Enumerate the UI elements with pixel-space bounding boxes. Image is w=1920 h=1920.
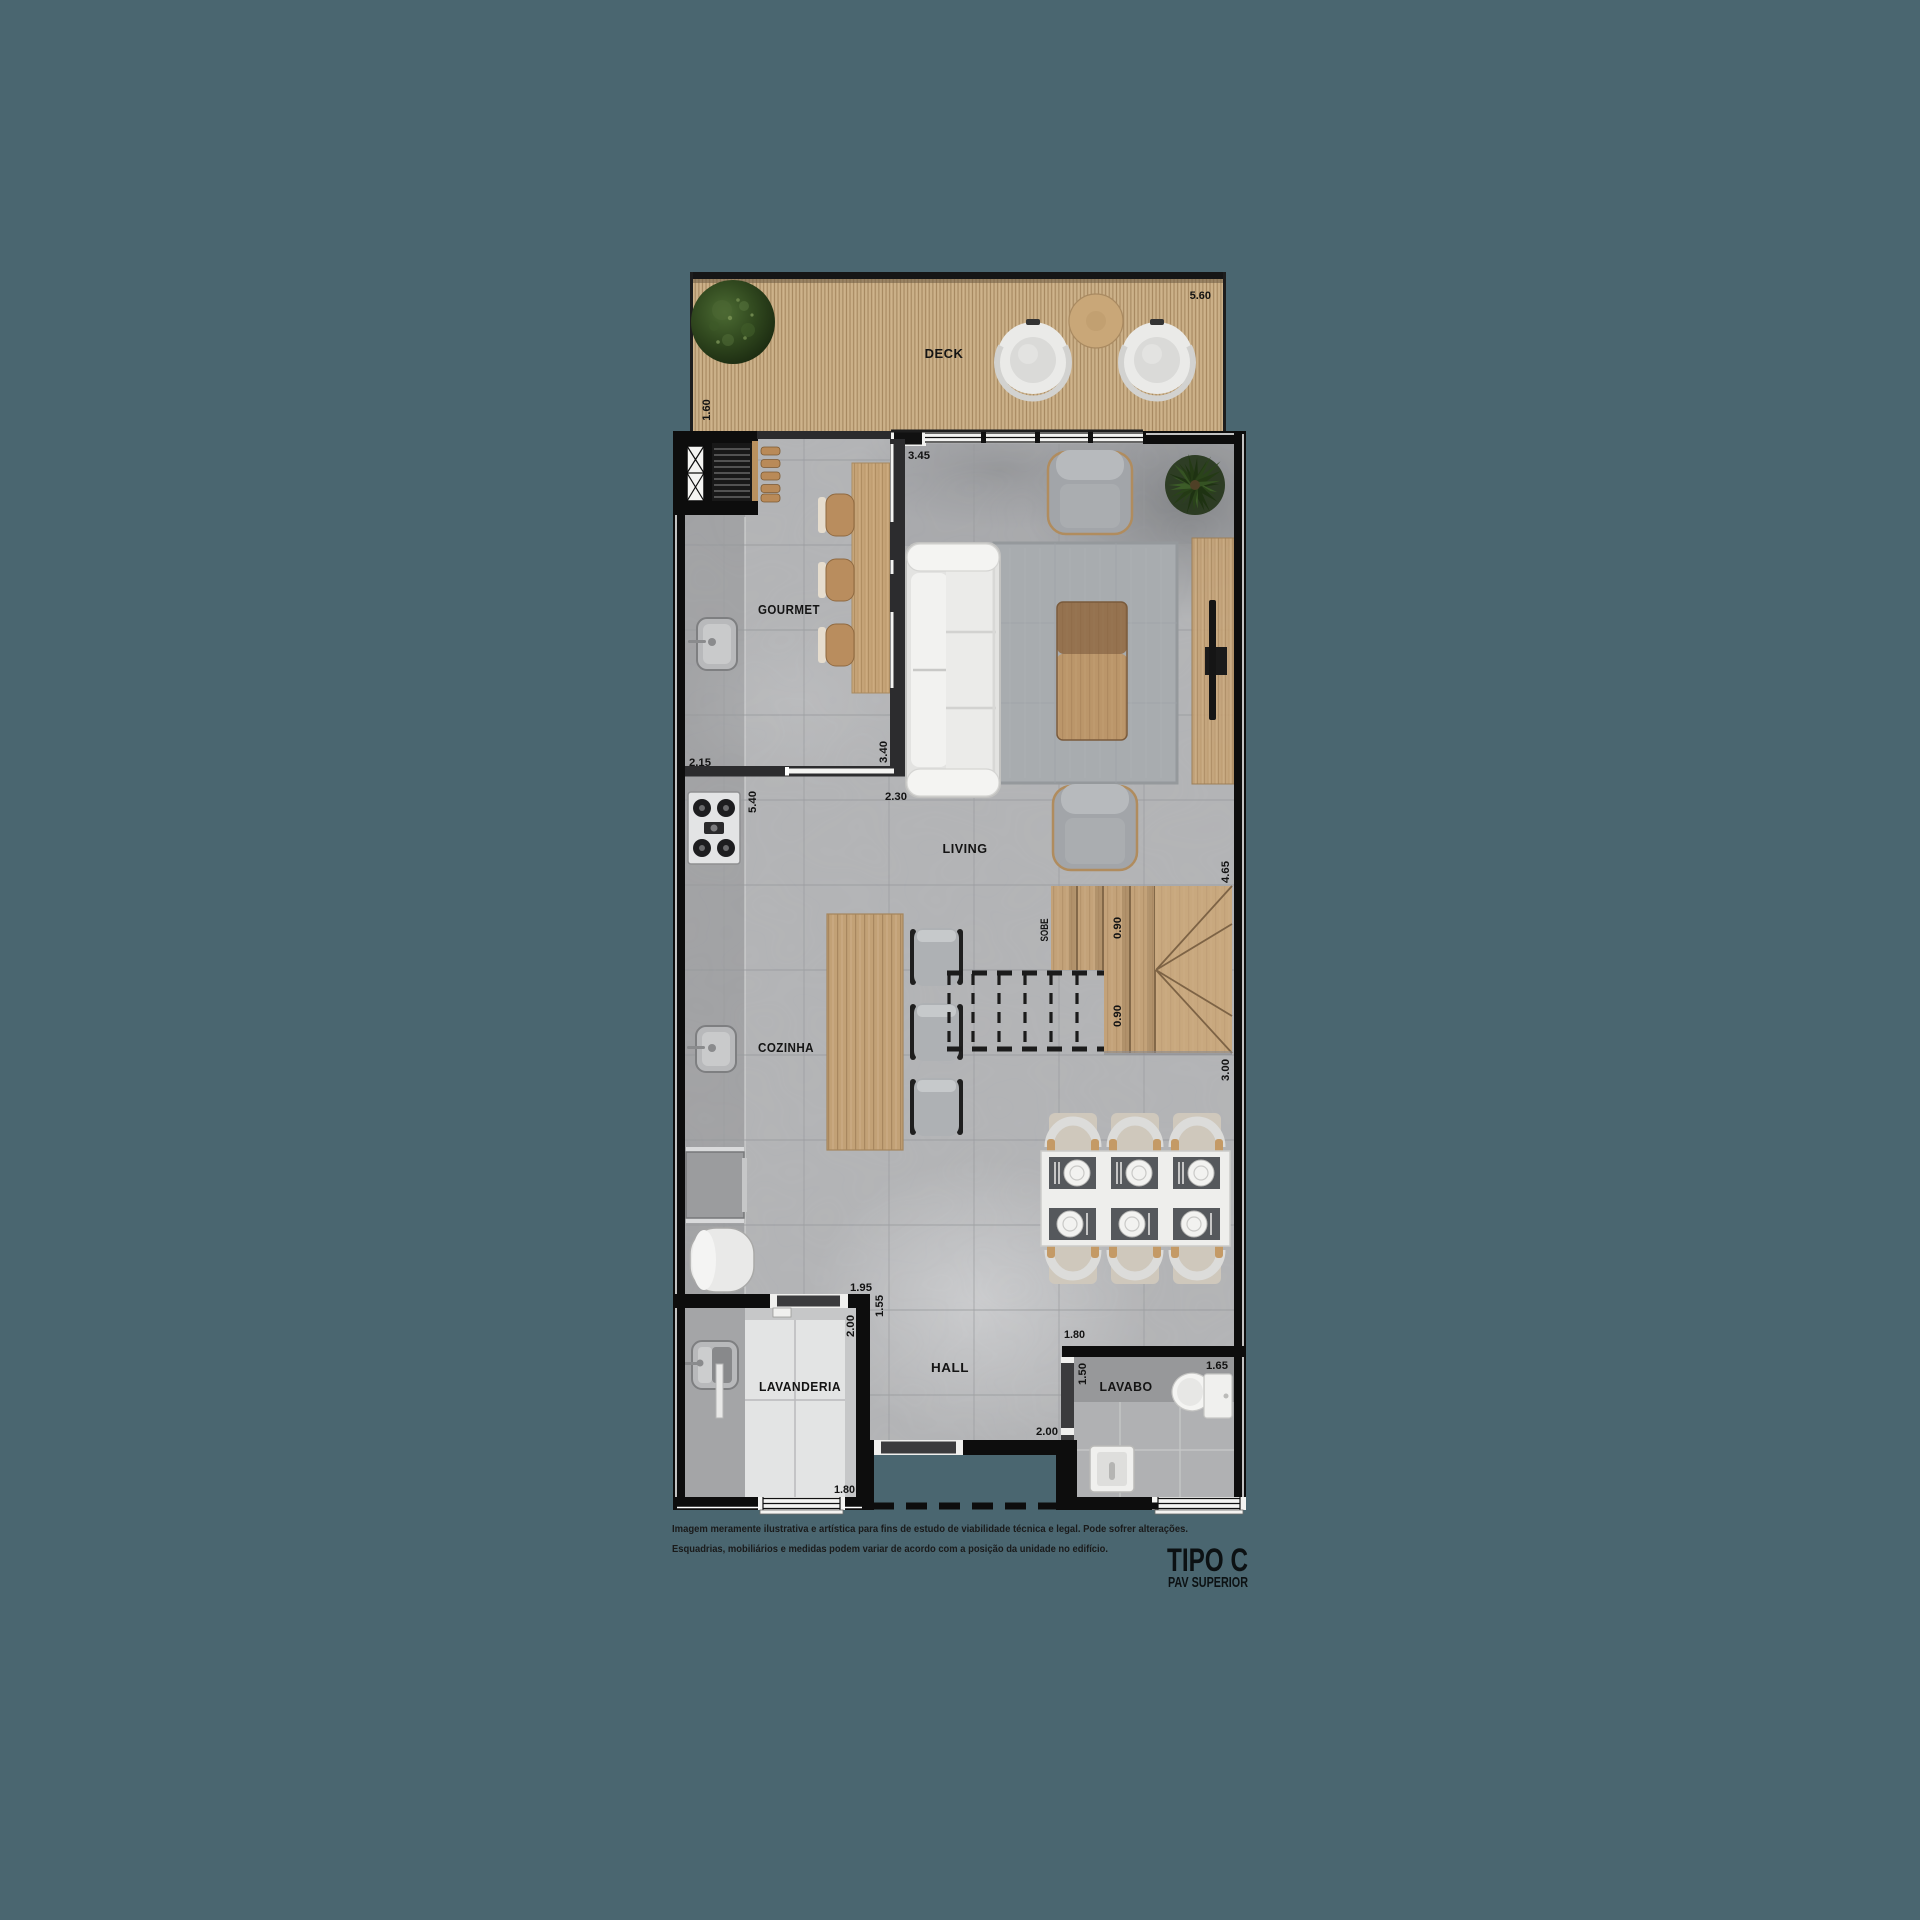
svg-text:1.50: 1.50: [1077, 1363, 1089, 1385]
svg-text:2.30: 2.30: [885, 791, 907, 803]
svg-text:Imagem meramente ilustrativa e: Imagem meramente ilustrativa e artística…: [672, 1523, 1188, 1535]
svg-text:0.90: 0.90: [1112, 917, 1124, 939]
svg-text:TIPO C: TIPO C: [1167, 1542, 1248, 1578]
svg-text:4.65: 4.65: [1220, 861, 1232, 883]
svg-text:SOBE: SOBE: [1039, 919, 1051, 942]
svg-text:GOURMET: GOURMET: [758, 602, 820, 617]
svg-text:2.00: 2.00: [1036, 1426, 1058, 1438]
svg-text:1.95: 1.95: [850, 1282, 872, 1294]
svg-text:COZINHA: COZINHA: [758, 1040, 814, 1055]
svg-text:LAVABO: LAVABO: [1100, 1379, 1153, 1394]
svg-text:3.45: 3.45: [908, 450, 930, 462]
svg-text:5.60: 5.60: [1190, 290, 1211, 302]
svg-text:LIVING: LIVING: [943, 841, 988, 856]
svg-text:PAV SUPERIOR: PAV SUPERIOR: [1168, 1574, 1248, 1591]
svg-text:DECK: DECK: [925, 346, 964, 361]
svg-text:0.90: 0.90: [1112, 1005, 1124, 1027]
svg-text:LAVANDERIA: LAVANDERIA: [759, 1379, 841, 1394]
svg-text:2.15: 2.15: [689, 757, 711, 769]
svg-text:3.40: 3.40: [878, 741, 890, 763]
svg-text:HALL: HALL: [931, 1360, 969, 1375]
svg-text:1.80: 1.80: [1064, 1329, 1085, 1341]
svg-text:5.40: 5.40: [747, 791, 759, 813]
svg-text:1.55: 1.55: [874, 1295, 886, 1317]
svg-text:3.00: 3.00: [1220, 1059, 1232, 1081]
svg-text:1.80: 1.80: [834, 1484, 855, 1496]
svg-text:Esquadrias, mobiliários e medi: Esquadrias, mobiliários e medidas podem …: [672, 1543, 1108, 1555]
svg-text:1.60: 1.60: [701, 399, 713, 420]
svg-text:1.65: 1.65: [1206, 1360, 1228, 1372]
svg-text:2.00: 2.00: [845, 1315, 857, 1337]
